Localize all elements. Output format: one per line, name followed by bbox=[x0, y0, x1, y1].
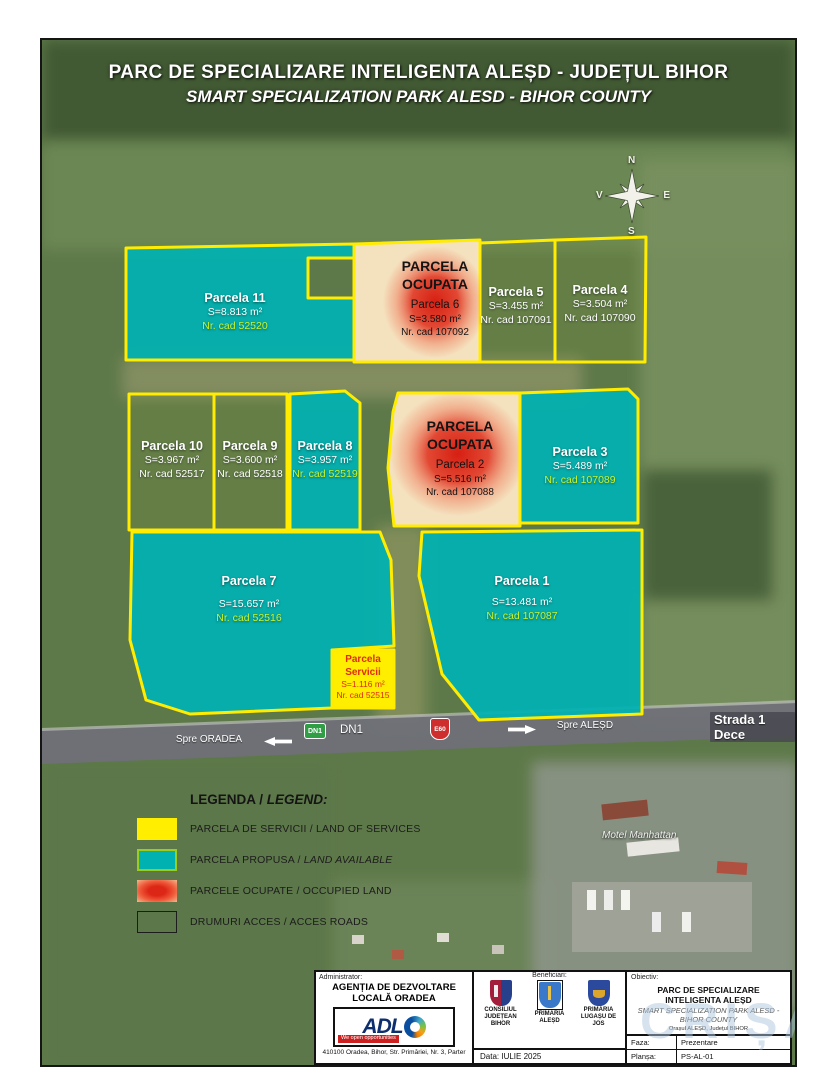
parcel-area: S=8.813 m² bbox=[175, 306, 295, 320]
parcel-area: S=3.504 m² bbox=[554, 298, 646, 312]
administrator-section: Administrator: AGENȚIA DE DEZVOLTARE LOC… bbox=[316, 972, 474, 1063]
administrator-label: Administrator: bbox=[319, 974, 469, 981]
legend-item-roads: DRUMURI ACCES / ACCES ROADS bbox=[137, 910, 421, 933]
faza-row: Faza: Prezentare bbox=[627, 1036, 790, 1049]
parcel-name: Parcela 4 bbox=[554, 282, 646, 298]
beneficiary-alesd: PRIMĂRIA ALEȘD bbox=[526, 980, 574, 1048]
road-label-alesd: Spre ALEȘD bbox=[540, 720, 630, 731]
legend-title-en: LEGEND: bbox=[267, 792, 328, 807]
parcel-cad: Nr. cad 52520 bbox=[175, 320, 295, 334]
road-label-dn1: DN1 bbox=[340, 724, 363, 736]
adlo-logo-tagline: We open opportunities bbox=[338, 1035, 399, 1043]
legend-item-services: PARCELA DE SERVICII / LAND OF SERVICES bbox=[137, 817, 421, 840]
parcel-name: Parcela 11 bbox=[175, 290, 295, 306]
adlo-logo-globe-icon bbox=[404, 1016, 426, 1038]
objective-label: Obiectiv: bbox=[627, 972, 790, 981]
title-line-2: SMART SPECIALIZATION PARK ALESD - BIHOR … bbox=[42, 87, 795, 107]
parcel-name: Parcela 3 bbox=[534, 444, 626, 460]
compass-east-label: E bbox=[663, 190, 670, 201]
adlo-logo: ADL We open opportunities bbox=[333, 1007, 455, 1047]
legend-label: PARCELA PROPUSA / LAND AVAILABLE bbox=[190, 854, 393, 866]
main-road bbox=[42, 702, 795, 764]
parcel-name: Parcela 8 bbox=[285, 438, 365, 454]
parcel-name: Parcela 1 bbox=[462, 573, 582, 589]
legend-label-ro: DRUMURI ACCES / bbox=[190, 916, 287, 928]
parcel-name: Parcela 2 bbox=[398, 458, 522, 473]
compass-rose: N E S V bbox=[594, 158, 670, 234]
parcel-name: Parcela 7 bbox=[189, 573, 309, 589]
legend-swatch-occupied bbox=[137, 880, 177, 902]
legend-label-en: ACCES ROADS bbox=[289, 916, 368, 928]
parcel-label-3: Parcela 3 S=5.489 m² Nr. cad 107089 bbox=[534, 444, 626, 488]
legend-swatch-services bbox=[137, 818, 177, 840]
legend-label-en: LAND OF SERVICES bbox=[316, 823, 421, 835]
parcel-cad: Nr. cad 52517 bbox=[131, 468, 213, 482]
e60-road-sign: E60 bbox=[430, 718, 450, 740]
beneficiary-name: CONSILIUL JUDEȚEAN BIHOR bbox=[477, 1007, 525, 1028]
beneficiaries-crests: CONSILIUL JUDEȚEAN BIHOR PRIMĂRIA ALEȘD … bbox=[474, 979, 625, 1048]
parcel-cad: Nr. cad 107089 bbox=[534, 474, 626, 488]
beneficiary-lugasu: PRIMĂRIA LUGAȘU DE JOS bbox=[575, 980, 623, 1048]
administrator-name: AGENȚIA DE DEZVOLTARE LOCALĂ ORADEA bbox=[319, 982, 469, 1005]
dn1-road-sign: DN1 bbox=[304, 723, 326, 739]
road-label-oradea: Spre ORADEA bbox=[159, 734, 259, 745]
phase-table: Faza: Prezentare Planșa: PS-AL-01 bbox=[627, 1034, 790, 1063]
parcel-label-1: Parcela 1 S=13.481 m² Nr. cad 107087 bbox=[462, 573, 582, 624]
date-row: Data: IULIE 2025 bbox=[474, 1048, 625, 1063]
parcel-label-5: Parcela 5 S=3.455 m² Nr. cad 107091 bbox=[476, 284, 556, 328]
parcel-area: S=13.481 m² bbox=[462, 596, 582, 610]
beneficiary-cjb: CONSILIUL JUDEȚEAN BIHOR bbox=[477, 980, 525, 1048]
legend: LEGENDA / LEGEND: PARCELA DE SERVICII / … bbox=[137, 792, 421, 941]
parcel-status: PARCELA OCUPATA bbox=[390, 258, 480, 293]
compass-south-label: S bbox=[628, 226, 635, 237]
parcel-cad: Nr. cad 107090 bbox=[554, 312, 646, 326]
alesd-coat-of-arms-icon bbox=[539, 982, 561, 1008]
parcel-cad: Nr. cad 107088 bbox=[398, 486, 522, 499]
parcel-area: S=3.455 m² bbox=[476, 300, 556, 314]
title-block-panel: Administrator: AGENȚIA DE DEZVOLTARE LOC… bbox=[314, 970, 792, 1065]
legend-label: DRUMURI ACCES / ACCES ROADS bbox=[190, 916, 368, 928]
map-title: PARC DE SPECIALIZARE INTELIGENTA ALEȘD -… bbox=[42, 62, 795, 107]
adlo-logo-letters: ADL bbox=[362, 1016, 402, 1037]
parcel-area: S=15.657 m² bbox=[189, 598, 309, 612]
legend-label-ro: PARCELA PROPUSA / bbox=[190, 854, 301, 866]
beneficiaries-section: Beneficiari: CONSILIUL JUDEȚEAN BIHOR PR… bbox=[474, 972, 627, 1063]
legend-title-ro: LEGENDA / bbox=[190, 792, 263, 807]
administrator-address: 410100 Oradea, Bihor, Str. Primăriei, Nr… bbox=[319, 1049, 469, 1056]
parcel-cad: Nr. cad 52518 bbox=[211, 468, 289, 482]
legend-item-available: PARCELA PROPUSA / LAND AVAILABLE bbox=[137, 848, 421, 871]
parcel-area: S=3.967 m² bbox=[131, 454, 213, 468]
legend-title: LEGENDA / LEGEND: bbox=[190, 792, 421, 807]
parcel-label-7: Parcela 7 S=15.657 m² Nr. cad 52516 bbox=[189, 573, 309, 626]
title-line-1: PARC DE SPECIALIZARE INTELIGENTA ALEȘD -… bbox=[42, 62, 795, 84]
parcel-label-11: Parcela 11 S=8.813 m² Nr. cad 52520 bbox=[175, 290, 295, 334]
objective-section: Obiectiv: PARC DE SPECIALIZARE INTELIGEN… bbox=[627, 972, 790, 1063]
alesd-crest-frame bbox=[537, 980, 563, 1010]
legend-label: PARCELA DE SERVICII / LAND OF SERVICES bbox=[190, 823, 421, 835]
beneficiary-name: PRIMĂRIA LUGAȘU DE JOS bbox=[575, 1007, 623, 1028]
street-name-label: Strada 1 Dece bbox=[710, 712, 795, 742]
parcel-area: S=5.516 m² bbox=[398, 473, 522, 486]
compass-north-label: N bbox=[628, 155, 635, 166]
arrow-left-icon bbox=[264, 736, 292, 747]
parcel-area: S=1.116 m² bbox=[333, 679, 393, 690]
cjb-coat-of-arms-icon bbox=[490, 980, 512, 1006]
motel-label: Motel Manhattan bbox=[602, 830, 677, 841]
parcel-name: Parcela 10 bbox=[131, 438, 213, 454]
parcela-1-polygon bbox=[419, 530, 642, 720]
plansa-value: PS-AL-01 bbox=[677, 1050, 790, 1063]
faza-value: Prezentare bbox=[677, 1036, 790, 1049]
parcel-area: S=3.957 m² bbox=[285, 454, 365, 468]
parcel-cad: Nr. cad 52519 bbox=[285, 468, 365, 482]
parcel-cad: Nr. cad 52515 bbox=[333, 690, 393, 701]
legend-label-ro: PARCELE OCUPATE / bbox=[190, 885, 300, 897]
legend-label-ro: PARCELA DE SERVICII / bbox=[190, 823, 313, 835]
site-plan-map: PARC DE SPECIALIZARE INTELIGENTA ALEȘD -… bbox=[40, 38, 797, 1067]
parcel-cad: Nr. cad 107091 bbox=[476, 314, 556, 328]
legend-swatch-available bbox=[137, 849, 177, 871]
parcel-status: PARCELA OCUPATA bbox=[415, 418, 505, 453]
parcel-area: S=5.489 m² bbox=[534, 460, 626, 474]
parcel-name: Parcela 5 bbox=[476, 284, 556, 300]
parcel-label-servicii: Parcela Servicii S=1.116 m² Nr. cad 5251… bbox=[333, 654, 393, 700]
plansa-row: Planșa: PS-AL-01 bbox=[627, 1049, 790, 1063]
legend-item-occupied: PARCELE OCUPATE / OCCUPIED LAND bbox=[137, 879, 421, 902]
parcel-cad: Nr. cad 52516 bbox=[189, 612, 309, 626]
parcel-name: Servicii bbox=[333, 667, 393, 680]
parcel-name: Parcela bbox=[333, 654, 393, 667]
legend-label-en: LAND AVAILABLE bbox=[304, 854, 393, 866]
compass-west-label: V bbox=[596, 190, 603, 201]
parcel-area: S=3.600 m² bbox=[211, 454, 289, 468]
lugasu-coat-of-arms-icon bbox=[588, 980, 610, 1006]
parcel-label-8: Parcela 8 S=3.957 m² Nr. cad 52519 bbox=[285, 438, 365, 482]
objective-location: Orașul ALEȘD, Județul BIHOR bbox=[627, 1026, 790, 1032]
beneficiaries-label: Beneficiari: bbox=[474, 972, 625, 979]
objective-subtitle: SMART SPECIALIZATION PARK ALESD - BIHOR … bbox=[627, 1006, 790, 1024]
parcel-cad: Nr. cad 107092 bbox=[375, 326, 495, 339]
legend-swatch-roads bbox=[137, 911, 177, 933]
plansa-label: Planșa: bbox=[627, 1050, 677, 1063]
parcel-label-10: Parcela 10 S=3.967 m² Nr. cad 52517 bbox=[131, 438, 213, 482]
parcel-label-2: PARCELA OCUPATA Parcela 2 S=5.516 m² Nr.… bbox=[398, 418, 522, 499]
legend-label-en: OCCUPIED LAND bbox=[303, 885, 392, 897]
parcel-label-4: Parcela 4 S=3.504 m² Nr. cad 107090 bbox=[554, 282, 646, 326]
beneficiary-name: PRIMĂRIA ALEȘD bbox=[526, 1011, 574, 1025]
arrow-right-icon bbox=[508, 724, 536, 735]
objective-title: PARC DE SPECIALIZARE INTELIGENTA ALEȘD bbox=[627, 985, 790, 1005]
legend-label: PARCELE OCUPATE / OCCUPIED LAND bbox=[190, 885, 392, 897]
parcel-name: Parcela 9 bbox=[211, 438, 289, 454]
parcel-cad: Nr. cad 107087 bbox=[462, 610, 582, 624]
parcel-label-9: Parcela 9 S=3.600 m² Nr. cad 52518 bbox=[211, 438, 289, 482]
compass-star-icon bbox=[594, 158, 670, 234]
faza-label: Faza: bbox=[627, 1036, 677, 1049]
